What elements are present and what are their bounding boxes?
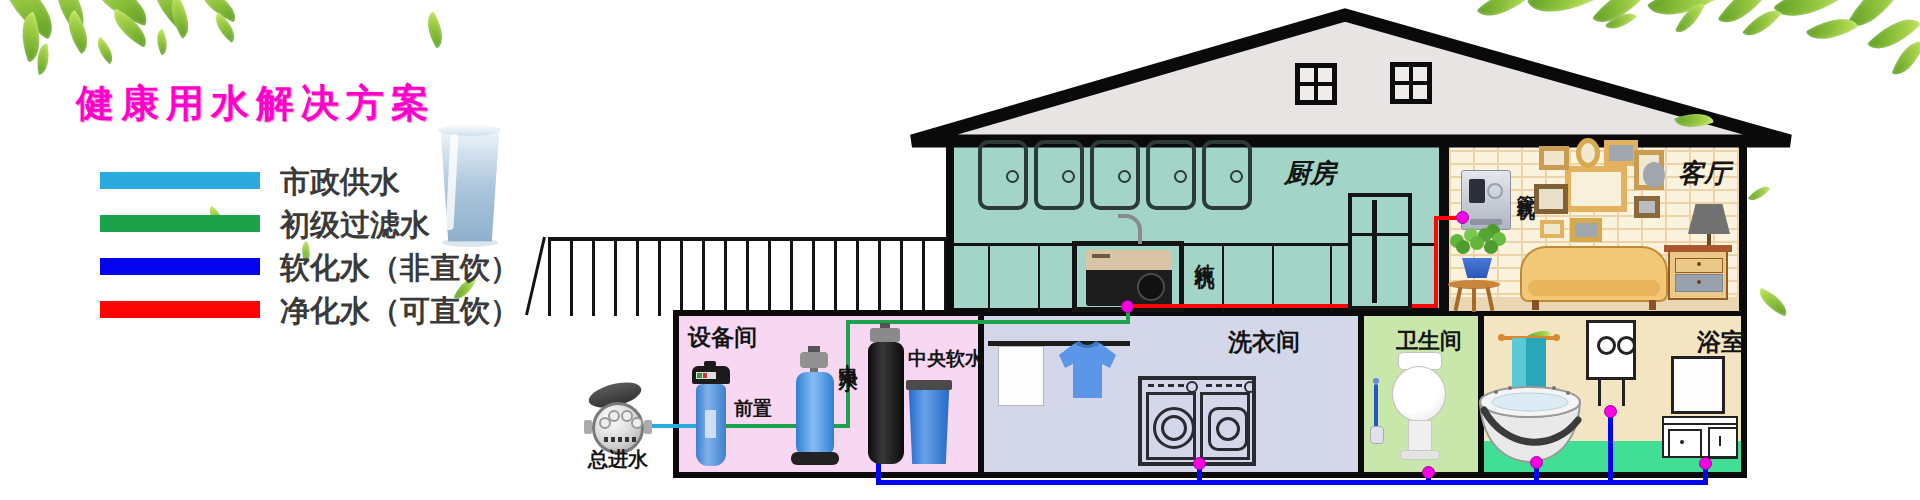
legend-label-purified: 净化水（可直饮）: [280, 291, 520, 332]
nightstand: [1668, 250, 1728, 300]
sofa: [1520, 246, 1668, 302]
picture-frame: [1540, 220, 1564, 238]
picture-frame: [1570, 218, 1602, 242]
meter-label: 总进水: [582, 446, 654, 473]
hanging-towel: [998, 346, 1044, 406]
toilet-base: [1408, 420, 1432, 452]
leaf-icon: [91, 37, 119, 65]
picture-frame: [1565, 166, 1627, 212]
pipe-softened: [1608, 411, 1613, 481]
pipe-purified: [1434, 216, 1438, 308]
central-softener-label: 中央软水: [908, 346, 984, 372]
kitchen-cabinet: [1146, 140, 1196, 210]
prefilter-body: [696, 384, 726, 466]
bathroom-vanity: [1662, 416, 1738, 458]
legend-label-municipal: 市政供水: [280, 162, 400, 203]
picture-frame: [1576, 138, 1600, 168]
water-heater: [1586, 320, 1636, 380]
kitchen-label: 厨房: [1284, 156, 1336, 191]
salt-tank-body: [908, 390, 950, 464]
central-purifier-tank: [796, 372, 834, 456]
leaf-icon: [1527, 0, 1595, 26]
legend-label-softened: 软化水（非直饮）: [280, 248, 520, 289]
counter-divider: [988, 246, 990, 312]
connection-dot: [1121, 300, 1134, 313]
water-purifier-machine: [1086, 250, 1172, 306]
water-glass-rim: [438, 124, 500, 136]
tshirt-icon: [1054, 340, 1120, 402]
bathroom-mirror: [1671, 356, 1725, 414]
prefilter-cap: [692, 366, 730, 384]
central-purifier-valve: [800, 352, 828, 368]
legend-swatch-filtered: [100, 215, 260, 232]
leaf-icon: [1754, 288, 1792, 317]
picture-frame: [1534, 184, 1568, 214]
pipe-softened: [876, 480, 1708, 485]
picture-frame: [1634, 196, 1660, 218]
equipment-room-label: 设备间: [688, 322, 757, 353]
laundry-room-label: 洗衣间: [1228, 326, 1300, 358]
legend-swatch-purified: [100, 301, 260, 318]
legend-label-filtered: 初级过滤水: [280, 205, 430, 246]
terrace-fence: [548, 237, 946, 316]
central-purifier-base: [791, 452, 839, 465]
attic-window: [1390, 62, 1432, 104]
central-softener-tank: [868, 342, 904, 464]
connection-dot: [1456, 211, 1469, 224]
connection-dot: [1699, 457, 1712, 470]
kitchen-cabinet: [978, 140, 1028, 210]
toilet-foot: [1400, 450, 1440, 460]
banner: 健康用水解决方案 市政供水 初级过滤水 软化水（非直饮） 净化水（可直饮） 厨房: [0, 0, 1920, 500]
connection-dot: [1604, 405, 1617, 418]
heater-leg: [1598, 380, 1601, 406]
legend-swatch-municipal: [100, 172, 260, 189]
counter-divider: [1330, 246, 1332, 312]
prefilter-label: 前置: [734, 396, 772, 422]
legend-swatch-softened: [100, 258, 260, 275]
fridge: [1348, 193, 1412, 310]
central-softener-valve: [870, 328, 900, 342]
toilet-brush: [1374, 384, 1378, 428]
connection-dot: [1193, 457, 1206, 470]
bathtub: [1476, 376, 1588, 470]
pipeline-dispenser: [1461, 170, 1511, 230]
leaf-icon: [1477, 0, 1534, 29]
toilet-room-label: 卫生间: [1396, 326, 1462, 356]
kitchen-cabinet: [1090, 140, 1140, 210]
page-title: 健康用水解决方案: [76, 78, 436, 129]
water-meter-ear: [644, 420, 652, 434]
connection-dot: [1530, 456, 1543, 469]
counter-divider: [1272, 246, 1274, 312]
plant-foliage: [1456, 240, 1470, 254]
central-purifier-label: 中央净水: [836, 348, 862, 460]
connection-dot: [1422, 466, 1435, 479]
stool-leg: [1472, 288, 1476, 312]
salt-tank-lid: [906, 380, 952, 390]
attic-window: [1295, 63, 1337, 105]
leaf-icon: [1806, 7, 1859, 50]
washing-machine-front: [1146, 392, 1196, 460]
counter-divider: [1038, 246, 1040, 312]
terrace-fence-end: [525, 237, 546, 316]
picture-frame: [1604, 140, 1638, 166]
kitchen-cabinet: [1034, 140, 1084, 210]
leaf-icon: [420, 11, 451, 48]
dispenser-label: 管线机: [1514, 181, 1538, 243]
washing-machine-top: [1200, 392, 1250, 460]
leaf-icon: [151, 29, 172, 56]
counter-divider: [1222, 246, 1224, 312]
kitchen-cabinet: [1202, 140, 1252, 210]
water-meter-ear: [584, 420, 592, 434]
leaf-icon: [1748, 182, 1771, 206]
heater-leg: [1622, 380, 1625, 406]
bathroom-label: 浴室: [1697, 326, 1745, 358]
picture-frame: [1634, 150, 1664, 190]
toilet-bowl: [1392, 366, 1446, 422]
living-room-label: 客厅: [1678, 156, 1730, 191]
pipe-municipal: [648, 424, 698, 428]
picture-frame: [1539, 146, 1569, 170]
purifier-label: 纯水机: [1192, 248, 1219, 312]
